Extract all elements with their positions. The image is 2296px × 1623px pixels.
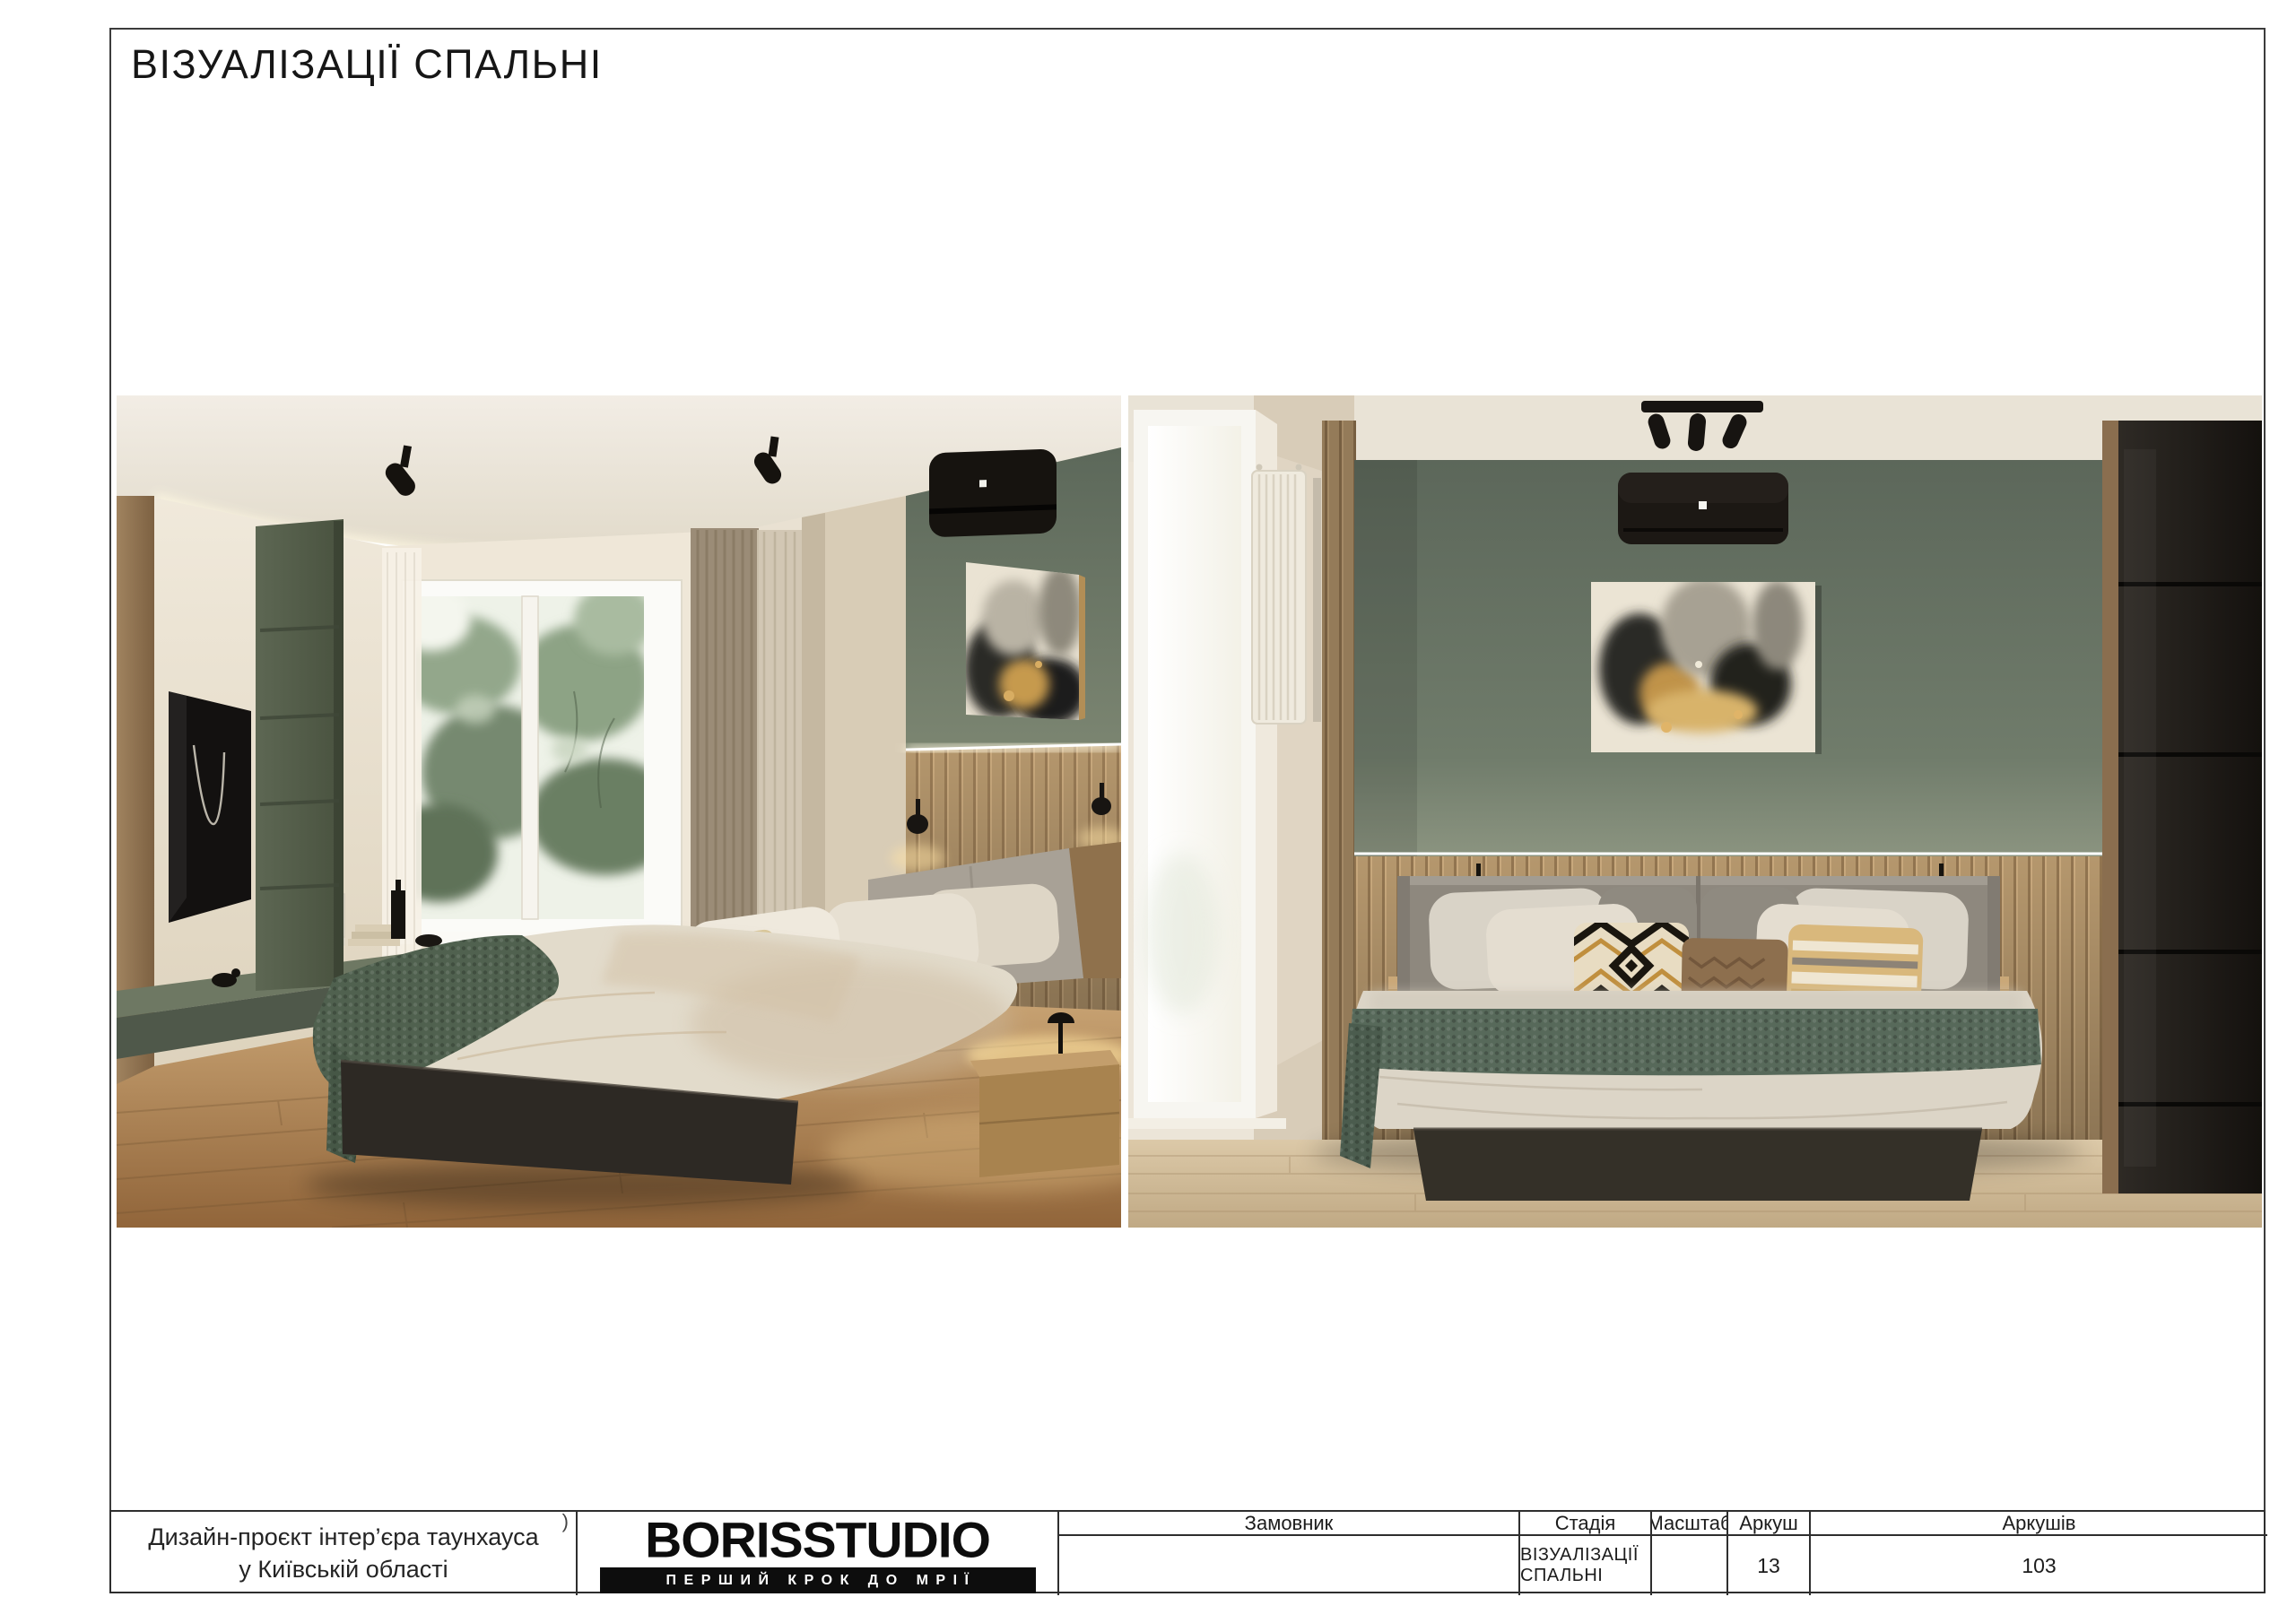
studio-tagline: ПЕРШИЙ КРОК ДО МРІЇ bbox=[659, 1573, 977, 1589]
page-title: ВІЗУАЛІЗАЦІЇ СПАЛЬНІ bbox=[131, 41, 603, 88]
project-sheet: { "page": { "title": "ВІЗУАЛІЗАЦІЇ СПАЛЬ… bbox=[0, 0, 2296, 1623]
bed-base bbox=[1413, 1129, 1982, 1201]
abstract-painting bbox=[964, 562, 1087, 725]
sheet-label: Аркуш bbox=[1726, 1512, 1809, 1536]
project-name: Дизайн-проєкт інтер’єра таунхауса у Київ… bbox=[146, 1522, 541, 1584]
title-block: Дизайн-проєкт інтер’єра таунхауса у Київ… bbox=[109, 1510, 2266, 1593]
ac-unit bbox=[929, 448, 1057, 537]
stage-label: Стадія bbox=[1518, 1512, 1650, 1536]
tv-screen bbox=[169, 691, 251, 923]
wardrobe bbox=[2102, 421, 2262, 1193]
fold-mark: ) bbox=[562, 1512, 569, 1533]
window-sill bbox=[1128, 1118, 1286, 1129]
scale-value bbox=[1650, 1536, 1726, 1595]
title-block-project-cell: Дизайн-проєкт інтер’єра таунхауса у Київ… bbox=[111, 1512, 576, 1595]
green-shelf-column bbox=[256, 519, 344, 991]
ac-unit bbox=[1618, 473, 1788, 544]
abstract-painting bbox=[1591, 577, 1822, 754]
sheets-value: 103 bbox=[1809, 1536, 2267, 1595]
sheet-value: 13 bbox=[1726, 1536, 1809, 1595]
scale-label: Масштаб bbox=[1650, 1512, 1726, 1536]
sheets-label: Аркушів bbox=[1809, 1512, 2267, 1536]
studio-logo-bar: ПЕРШИЙ КРОК ДО МРІЇ bbox=[600, 1567, 1036, 1593]
customer-value bbox=[1057, 1536, 1518, 1595]
stage-value: ВІЗУАЛІЗАЦІЇ СПАЛЬНІ bbox=[1518, 1536, 1650, 1595]
render-bedroom-side-view bbox=[117, 395, 1121, 1228]
bed bbox=[1340, 991, 2042, 1201]
customer-label: Замовник bbox=[1057, 1512, 1518, 1536]
render-bedroom-front-view bbox=[1128, 395, 2262, 1228]
bedroom-side-view-illustration bbox=[117, 395, 1121, 1228]
studio-logo-name: BORISSTUDIO bbox=[645, 1516, 990, 1567]
bedroom-front-view-illustration bbox=[1128, 395, 2262, 1228]
studio-logo: BORISSTUDIO ПЕРШИЙ КРОК ДО МРІЇ bbox=[576, 1512, 1057, 1595]
